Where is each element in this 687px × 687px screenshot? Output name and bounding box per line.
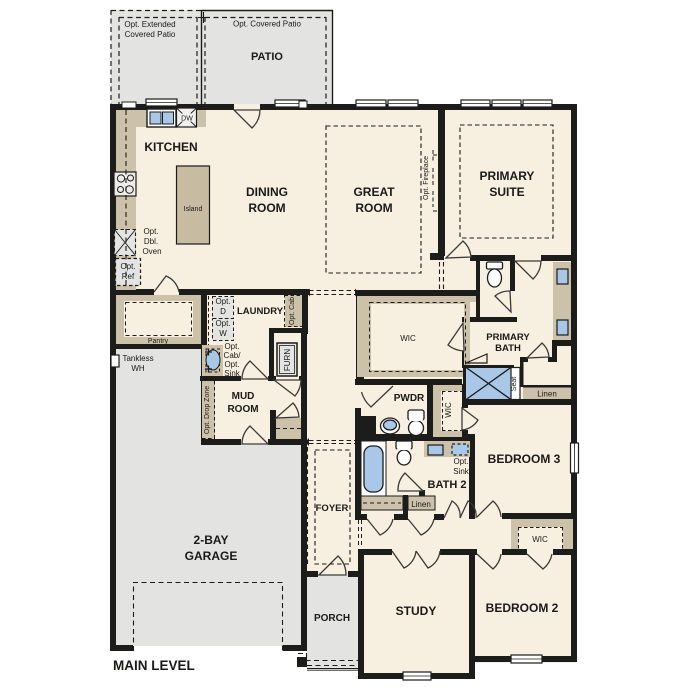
svg-text:DW: DW — [181, 116, 193, 123]
svg-text:PWDR: PWDR — [394, 393, 425, 404]
svg-text:Sink: Sink — [224, 369, 241, 378]
svg-text:PRIMARY: PRIMARY — [480, 169, 535, 183]
svg-text:Cab/: Cab/ — [224, 351, 242, 360]
svg-text:DINING: DINING — [246, 185, 288, 199]
svg-text:KITCHEN: KITCHEN — [144, 140, 197, 154]
svg-text:Sink: Sink — [453, 467, 470, 476]
svg-text:2-BAY: 2-BAY — [194, 533, 229, 547]
svg-text:PATIO: PATIO — [251, 51, 283, 63]
svg-text:Opt.: Opt. — [215, 297, 230, 306]
svg-text:Covered Patio: Covered Patio — [125, 30, 176, 39]
svg-text:Opt.: Opt. — [224, 342, 239, 351]
svg-text:ROOM: ROOM — [227, 404, 258, 415]
svg-text:Ref: Ref — [122, 272, 135, 281]
svg-text:Seat: Seat — [511, 377, 518, 391]
svg-text:ROOM: ROOM — [248, 201, 285, 215]
svg-text:PORCH: PORCH — [314, 613, 350, 624]
svg-text:D: D — [220, 307, 226, 316]
svg-text:MUD: MUD — [232, 391, 255, 402]
svg-text:FOYER: FOYER — [316, 503, 349, 514]
svg-text:Tankless: Tankless — [122, 354, 153, 363]
svg-text:BEDROOM 2: BEDROOM 2 — [486, 601, 559, 615]
svg-text:GARAGE: GARAGE — [185, 549, 238, 563]
svg-text:W: W — [219, 329, 227, 338]
svg-text:Opt. Fireplace: Opt. Fireplace — [423, 156, 430, 200]
svg-text:GREAT: GREAT — [353, 185, 395, 199]
svg-text:WIC: WIC — [532, 535, 548, 544]
svg-text:BATH 2: BATH 2 — [428, 479, 467, 491]
svg-text:Opt.: Opt. — [224, 360, 239, 369]
svg-text:LAUNDRY: LAUNDRY — [237, 306, 284, 317]
svg-text:Opt. Drop Zone: Opt. Drop Zone — [204, 386, 211, 434]
svg-text:PRIMARY: PRIMARY — [486, 332, 530, 343]
svg-text:BATH: BATH — [495, 343, 521, 354]
svg-text:FURN: FURN — [283, 349, 292, 371]
svg-text:Opt.: Opt. — [120, 262, 135, 271]
svg-text:ROOM: ROOM — [355, 201, 392, 215]
svg-text:SUITE: SUITE — [489, 185, 524, 199]
svg-text:STUDY: STUDY — [396, 604, 437, 618]
svg-text:Pantry: Pantry — [148, 338, 169, 345]
svg-text:Opt.: Opt. — [453, 457, 468, 466]
svg-text:Dbl.: Dbl. — [144, 237, 158, 246]
svg-text:BEDROOM 3: BEDROOM 3 — [488, 452, 561, 466]
svg-text:Opt. Cab: Opt. Cab — [289, 297, 296, 325]
svg-text:Island: Island — [184, 206, 203, 213]
svg-text:WIC: WIC — [400, 334, 416, 343]
svg-text:MAIN LEVEL: MAIN LEVEL — [113, 658, 195, 673]
svg-text:Opt.: Opt. — [215, 319, 230, 328]
svg-text:Opt. Extended: Opt. Extended — [124, 20, 175, 29]
svg-text:WH: WH — [131, 364, 145, 373]
svg-text:Opt.: Opt. — [143, 227, 158, 236]
svg-text:Oven: Oven — [142, 247, 161, 256]
svg-text:Linen: Linen — [411, 500, 431, 509]
svg-text:Opt. Covered Patio: Opt. Covered Patio — [233, 20, 302, 29]
svg-text:WIC: WIC — [444, 402, 453, 418]
svg-text:Linen: Linen — [537, 390, 557, 399]
